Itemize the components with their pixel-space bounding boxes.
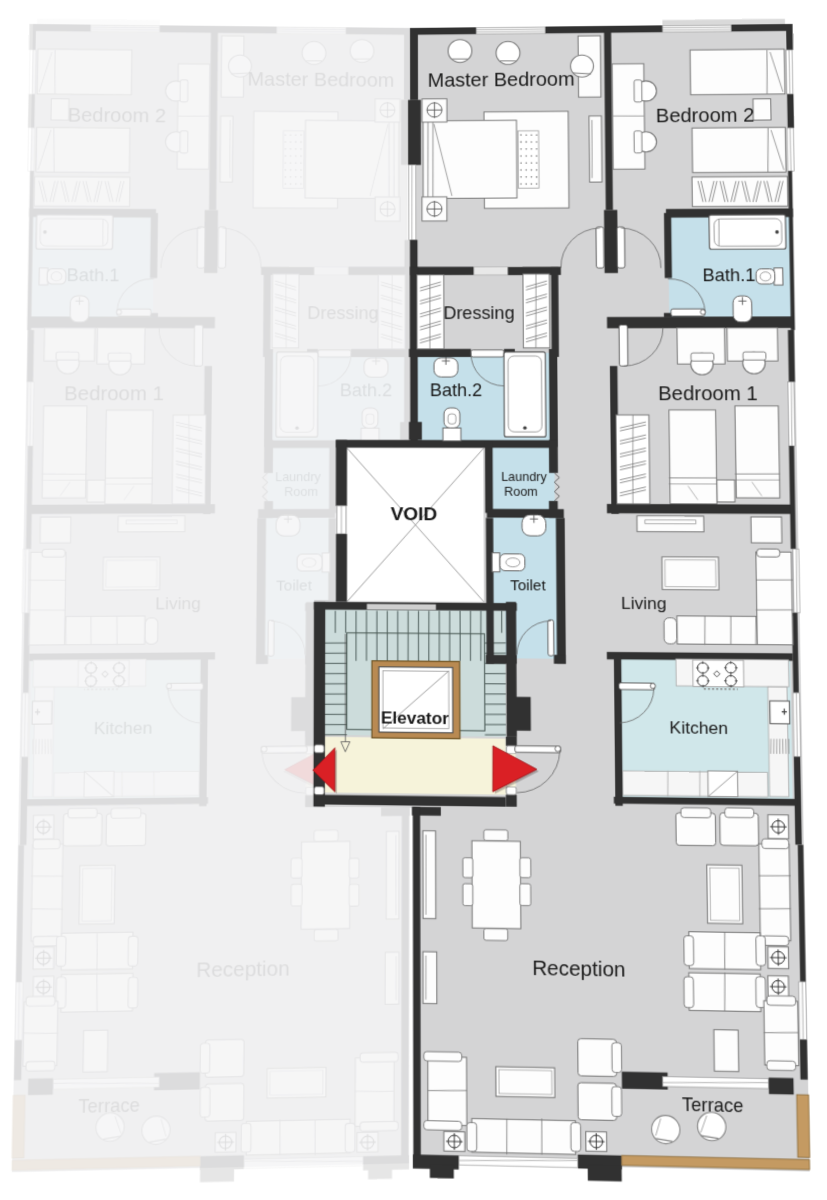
svg-text:Master Bedroom: Master Bedroom <box>428 69 575 91</box>
svg-text:Toilet: Toilet <box>276 578 312 594</box>
svg-text:Living: Living <box>621 595 667 614</box>
svg-text:Master Bedroom: Master Bedroom <box>247 69 394 92</box>
svg-text:Dressing: Dressing <box>307 303 378 323</box>
svg-text:Laundry: Laundry <box>275 470 322 484</box>
svg-text:Bath.2: Bath.2 <box>340 381 392 401</box>
svg-text:Reception: Reception <box>196 958 290 983</box>
svg-text:Bedroom 2: Bedroom 2 <box>656 106 755 128</box>
svg-text:Elevator: Elevator <box>381 708 450 728</box>
svg-text:Room: Room <box>504 485 538 500</box>
svg-text:Reception: Reception <box>532 958 626 982</box>
svg-text:Kitchen: Kitchen <box>94 718 153 738</box>
svg-text:VOID: VOID <box>391 502 438 524</box>
svg-text:Toilet: Toilet <box>510 577 546 594</box>
svg-text:Room: Room <box>284 485 318 499</box>
svg-text:Bedroom 2: Bedroom 2 <box>67 105 166 127</box>
svg-text:Terrace: Terrace <box>682 1094 744 1116</box>
svg-text:Bedroom 1: Bedroom 1 <box>64 383 164 405</box>
svg-text:Bath.1: Bath.1 <box>702 265 755 286</box>
svg-text:Laundry: Laundry <box>501 470 547 485</box>
svg-text:Dressing: Dressing <box>443 302 514 322</box>
svg-text:Bedroom 1: Bedroom 1 <box>658 384 758 406</box>
svg-text:Bath.2: Bath.2 <box>430 380 482 400</box>
svg-text:Terrace: Terrace <box>78 1094 140 1117</box>
svg-text:Kitchen: Kitchen <box>669 718 728 738</box>
svg-text:Bath.1: Bath.1 <box>66 266 119 286</box>
svg-text:Living: Living <box>155 594 201 614</box>
